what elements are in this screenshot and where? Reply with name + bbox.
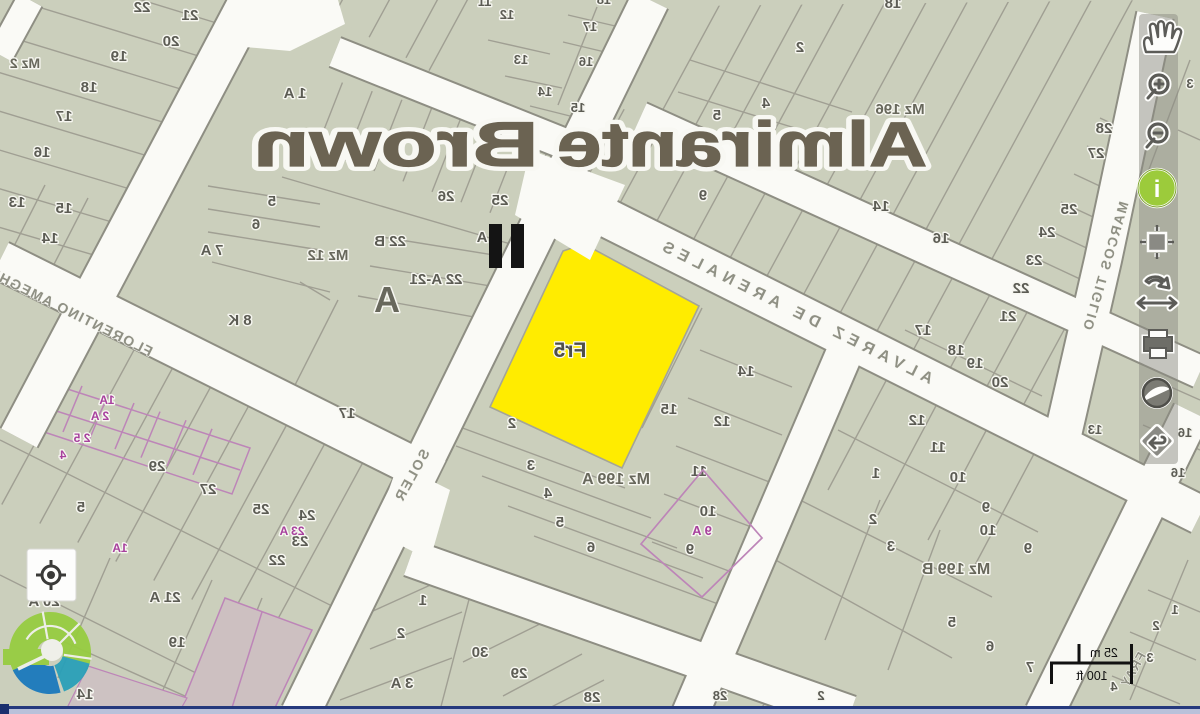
svg-text:Mz 12: Mz 12 [308,247,349,264]
svg-text:3 A: 3 A [390,675,413,692]
svg-text:22: 22 [1013,280,1030,297]
svg-text:28: 28 [713,688,727,703]
svg-text:1: 1 [872,465,880,482]
svg-text:Mz 2: Mz 2 [10,55,41,71]
svg-text:9: 9 [686,541,694,558]
svg-text:29: 29 [511,665,528,682]
svg-text:i: i [1154,176,1161,203]
svg-text:21 A: 21 A [149,589,180,606]
svg-text:5: 5 [556,514,564,531]
svg-text:18: 18 [885,0,902,12]
svg-text:16: 16 [933,230,950,247]
svg-text:13: 13 [514,52,528,67]
svg-text:28: 28 [584,689,601,706]
svg-text:2: 2 [508,415,516,432]
svg-text:15: 15 [56,200,73,217]
svg-text:9 A: 9 A [692,523,712,538]
svg-text:9: 9 [1024,540,1032,557]
svg-text:10: 10 [950,469,967,486]
svg-text:14: 14 [872,198,889,215]
svg-text:1A: 1A [112,541,128,555]
svg-text:3: 3 [1186,76,1193,91]
svg-text:20: 20 [163,33,180,50]
svg-text:14: 14 [76,686,93,703]
svg-text:14: 14 [41,230,58,247]
svg-text:1: 1 [1171,602,1178,617]
svg-text:27: 27 [1088,145,1105,162]
svg-text:22: 22 [134,0,151,16]
svg-text:5: 5 [268,193,276,210]
svg-text:Fr5: Fr5 [553,339,586,362]
svg-text:23: 23 [1026,252,1043,269]
svg-text:16: 16 [579,54,593,69]
svg-text:22: 22 [269,552,286,569]
svg-text:23 A: 23 A [279,524,304,538]
svg-text:1A: 1A [99,393,115,407]
svg-text:9: 9 [982,499,990,516]
svg-text:3: 3 [527,457,535,474]
svg-text:6: 6 [587,539,595,556]
svg-text:16: 16 [1178,425,1192,440]
svg-text:14: 14 [737,363,754,380]
svg-text:5: 5 [948,614,956,631]
svg-text:A: A [374,279,400,320]
svg-text:19: 19 [111,48,128,65]
svg-text:18: 18 [81,79,98,96]
svg-text:24: 24 [298,507,315,524]
svg-text:11: 11 [478,0,492,9]
svg-text:25 m: 25 m [1090,646,1118,660]
svg-text:21: 21 [1000,308,1017,325]
svg-text:16: 16 [1171,465,1185,480]
svg-text:12: 12 [909,412,926,429]
svg-text:14: 14 [537,84,552,99]
svg-text:2: 2 [817,688,824,703]
svg-text:13: 13 [9,194,26,211]
svg-text:25: 25 [1061,201,1078,218]
svg-text:17: 17 [56,108,73,125]
svg-text:10: 10 [980,522,997,539]
svg-text:15: 15 [661,401,678,418]
svg-text:7 A: 7 A [200,242,223,259]
svg-text:22 A-21: 22 A-21 [410,271,463,288]
svg-text:20: 20 [992,374,1009,391]
svg-text:27: 27 [200,481,217,498]
svg-text:2: 2 [397,625,405,642]
svg-text:12: 12 [714,413,731,430]
svg-text:28: 28 [1096,120,1113,137]
svg-text:21: 21 [182,7,199,24]
svg-text:2: 2 [1152,618,1159,633]
svg-text:11: 11 [930,439,946,456]
svg-text:30: 30 [472,644,489,661]
svg-text:Almirante: Almirante [557,110,927,180]
svg-text:7: 7 [1026,659,1034,676]
svg-text:22 B: 22 B [374,233,406,250]
svg-text:6: 6 [986,638,994,655]
svg-text:1 A: 1 A [283,85,306,102]
svg-text:25: 25 [253,501,270,518]
svg-text:4: 4 [1110,679,1118,694]
svg-text:4: 4 [59,448,66,462]
svg-text:17: 17 [915,322,932,339]
svg-text:100 ft: 100 ft [1076,669,1108,683]
svg-text:24: 24 [1038,224,1055,241]
svg-text:16: 16 [34,144,51,161]
svg-text:17: 17 [339,405,356,422]
svg-text:5: 5 [77,499,85,516]
svg-text:17: 17 [583,19,597,34]
svg-text:Brown: Brown [254,110,539,180]
svg-text:2: 2 [869,511,877,528]
svg-text:4: 4 [543,485,552,502]
svg-text:10: 10 [700,503,717,520]
svg-text:18: 18 [948,342,965,359]
svg-text:19: 19 [967,355,984,372]
svg-text:19: 19 [169,634,186,651]
svg-text:1: 1 [419,592,427,609]
svg-text:Mz 199 B: Mz 199 B [922,561,990,578]
svg-text:2 A: 2 A [91,409,110,423]
svg-text:8 K: 8 K [228,312,252,329]
svg-text:2: 2 [796,39,804,56]
svg-text:12: 12 [500,7,514,22]
svg-text:18: 18 [597,0,611,7]
svg-text:2 5: 2 5 [73,431,90,445]
svg-text:Mz 199 A: Mz 199 A [582,471,650,488]
svg-text:13: 13 [1088,422,1102,437]
svg-text:9: 9 [699,187,707,204]
svg-text:6: 6 [252,216,260,233]
svg-text:29: 29 [149,458,166,475]
svg-text:26: 26 [438,188,455,205]
svg-text:25: 25 [492,192,509,209]
svg-text:3: 3 [887,538,895,555]
